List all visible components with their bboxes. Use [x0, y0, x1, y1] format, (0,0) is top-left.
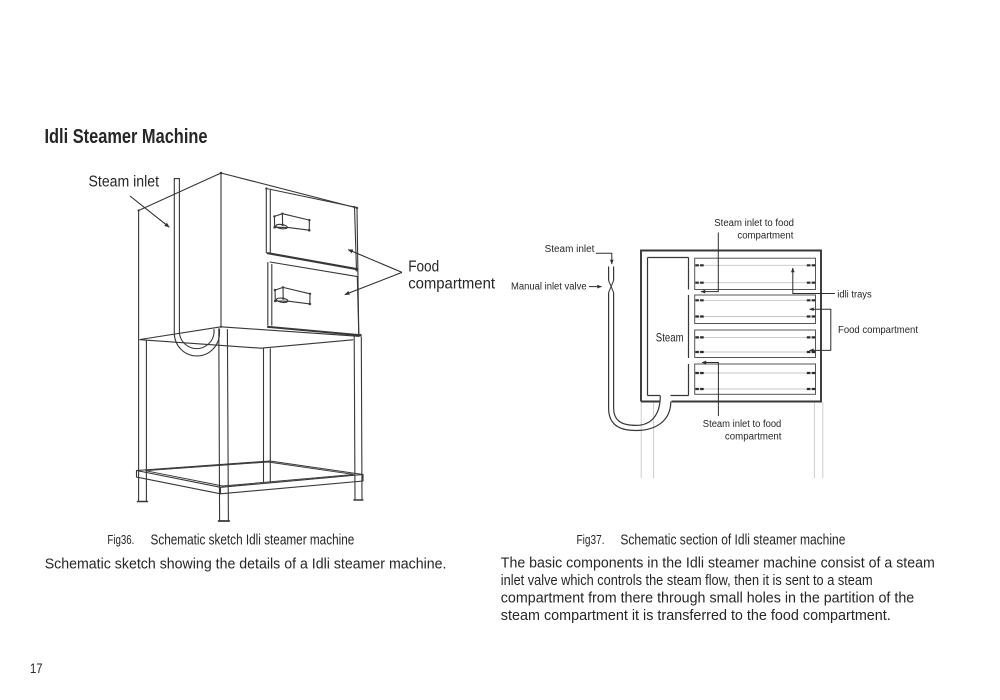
svg-text:compartment: compartment	[408, 276, 495, 293]
svg-text:Steam inlet to food: Steam inlet to food	[714, 218, 794, 229]
svg-text:compartment: compartment	[725, 431, 782, 442]
svg-text:idli trays: idli trays	[837, 289, 871, 300]
svg-text:Steam inlet: Steam inlet	[545, 244, 595, 255]
svg-text:Schematic sketch showing the d: Schematic sketch showing the details of …	[45, 556, 447, 573]
svg-text:Steam inlet to food: Steam inlet to food	[703, 419, 782, 430]
svg-text:Fig37.: Fig37.	[577, 532, 605, 547]
svg-text:compartment from there through: compartment from there through small hol…	[501, 590, 914, 607]
svg-text:Fig36.: Fig36.	[107, 532, 134, 547]
svg-text:The basic components in the Id: The basic components in the Idli steamer…	[501, 555, 935, 572]
svg-text:Schematic sketch Idli steamer: Schematic sketch Idli steamer machine	[151, 531, 355, 548]
svg-text:17: 17	[30, 660, 43, 676]
svg-text:inlet valve which controls the: inlet valve which controls the steam flo…	[501, 572, 873, 589]
svg-text:Idli Steamer Machine: Idli Steamer Machine	[45, 126, 208, 148]
svg-text:Manual inlet valve: Manual inlet valve	[511, 282, 587, 293]
svg-text:steam compartment it is transf: steam compartment it is transferred to t…	[501, 607, 891, 624]
svg-text:compartment: compartment	[737, 230, 793, 241]
svg-text:Schematic section of Idli ste: Schematic section of Idli steamer machin…	[620, 531, 845, 548]
svg-text:Food compartment: Food compartment	[838, 324, 918, 336]
svg-text:Steam inlet: Steam inlet	[89, 174, 160, 191]
svg-text:Food: Food	[408, 258, 439, 275]
svg-text:Steam: Steam	[656, 330, 684, 344]
